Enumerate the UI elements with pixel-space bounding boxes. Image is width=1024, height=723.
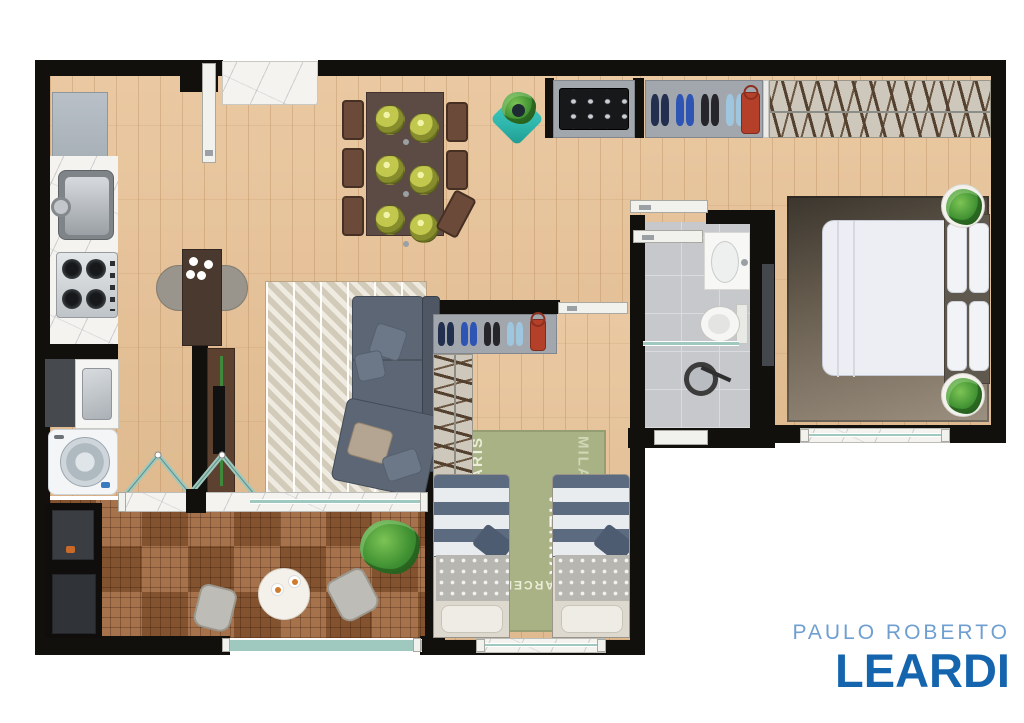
balcony-railing-glass — [228, 639, 422, 652]
bed-pillow — [441, 605, 503, 633]
bathroom-sink — [711, 241, 739, 283]
cutlery — [403, 191, 409, 197]
bed-pillow — [561, 605, 623, 633]
bed-headboard — [944, 214, 990, 384]
bed-pillow — [947, 223, 967, 293]
single-bed-right — [552, 474, 630, 638]
shoe — [726, 94, 734, 126]
door-frame — [118, 492, 126, 512]
door-frame — [420, 492, 428, 512]
window-frame — [597, 639, 606, 652]
shoe-pair — [651, 94, 669, 126]
toilet-bowl-inner — [708, 314, 730, 334]
closet-hanger-rail — [769, 80, 991, 138]
entry-door-handle — [205, 150, 213, 156]
cutlery — [403, 139, 409, 145]
entry-door-leaf — [202, 63, 216, 163]
dining-chair — [342, 148, 364, 188]
door-handle — [567, 306, 577, 311]
shoe — [711, 94, 719, 126]
plate — [409, 213, 439, 243]
plant-pot — [941, 184, 985, 228]
shoe — [676, 94, 684, 126]
dining-chair — [446, 102, 468, 142]
dining-chair — [342, 196, 364, 236]
tv-screen — [213, 386, 225, 454]
grill-ember — [66, 546, 75, 553]
service-shaft — [762, 264, 774, 366]
dining-chair — [342, 100, 364, 140]
kitchen-faucet — [51, 197, 71, 217]
window-frame — [800, 429, 809, 442]
dining-chair — [446, 150, 468, 190]
wall-balcony-bottom-left — [35, 636, 230, 655]
bedroom2-bag — [530, 319, 546, 351]
wall-balcony-corner-post — [420, 636, 445, 655]
entry-threshold — [222, 61, 318, 105]
brand-name-top: PAULO ROBERTO — [760, 622, 1010, 643]
potted-plant — [946, 189, 982, 225]
bathroom-sliding-door-inner — [633, 230, 703, 243]
floor-plan: PARISVIENNABARCELONAMILANNEW·YORKSYDNEYB… — [0, 0, 1024, 723]
brand-name-bottom: LEARDI — [760, 647, 1010, 694]
dotted-blanket — [555, 555, 629, 601]
bathroom-sliding-door — [630, 200, 708, 213]
sofa-pillow — [353, 349, 386, 382]
shoe-pair — [438, 322, 454, 346]
duvet-fold — [837, 221, 839, 377]
shoe — [461, 322, 468, 346]
island-plate — [204, 260, 213, 269]
bathroom-vanity — [704, 232, 750, 290]
shoe-pair — [484, 322, 500, 346]
railing-post — [222, 638, 230, 652]
shoe — [507, 322, 514, 346]
balcony-door-mullion — [186, 489, 206, 513]
single-bed-left — [433, 474, 510, 638]
closet-shoes — [651, 92, 737, 128]
bedroom2-hanger-rail — [433, 354, 473, 490]
shoe — [686, 94, 694, 126]
shoe — [470, 322, 477, 346]
planter-accessory — [512, 104, 525, 117]
wall-kitchen-stub — [45, 343, 118, 359]
shoe — [651, 94, 659, 126]
burner — [86, 259, 106, 279]
shoe-pair — [461, 322, 477, 346]
washer-drum — [60, 437, 110, 487]
plate — [409, 165, 439, 195]
dotted-blanket — [436, 555, 509, 601]
door-handle — [642, 235, 654, 240]
dining-table — [366, 92, 444, 236]
balcony-plant — [360, 520, 420, 574]
bedroom2-sliding-door — [558, 302, 628, 314]
wall-top-right — [318, 60, 1006, 76]
cutlery — [403, 241, 409, 247]
balcony-deck — [50, 500, 425, 638]
burner — [62, 259, 82, 279]
balcony-fruit — [292, 579, 298, 585]
laundry-cabinet — [45, 359, 75, 427]
plate — [375, 105, 405, 135]
bed-double-duvet — [822, 220, 950, 376]
oven-cooktop — [559, 88, 629, 130]
laundry-sink — [75, 359, 119, 429]
shoe — [493, 322, 500, 346]
plant-pot — [941, 373, 985, 417]
shower-door-threshold — [654, 430, 708, 445]
bed-pillow — [969, 223, 989, 293]
plate — [375, 205, 405, 235]
bathroom-faucet — [741, 259, 748, 266]
bedroom2-shoes — [438, 321, 520, 347]
washer-control — [54, 435, 64, 439]
shoe — [484, 322, 491, 346]
shoe — [438, 322, 445, 346]
bedroom1-window-glass — [808, 433, 942, 437]
brand-logo: PAULO ROBERTO LEARDI — [760, 622, 1010, 694]
washer-logo — [101, 482, 110, 488]
balcony-fruit — [275, 587, 281, 593]
closet-bag — [741, 92, 760, 134]
duvet-fold — [853, 221, 855, 377]
railing-post — [413, 638, 421, 652]
bedroom2-window-glass — [484, 643, 598, 647]
burner — [62, 289, 82, 309]
shoe-pair — [701, 94, 719, 126]
shoe-pair — [507, 322, 523, 346]
laundry-sink-basin — [82, 368, 112, 420]
bed-pillow — [947, 301, 967, 371]
shoe — [661, 94, 669, 126]
grill-cabinet — [52, 574, 96, 634]
window-frame — [476, 639, 485, 652]
plate — [409, 113, 439, 143]
wall-right — [991, 60, 1006, 430]
bed-pillow — [969, 301, 989, 371]
potted-plant — [946, 378, 982, 414]
plate — [375, 155, 405, 185]
shoe — [447, 322, 454, 346]
shoe-pair — [676, 94, 694, 126]
door-handle — [639, 205, 651, 210]
shoe — [701, 94, 709, 126]
kitchen-sink — [58, 170, 114, 240]
cooktop — [56, 252, 118, 318]
shower-glass-partition — [643, 341, 739, 346]
washing-machine — [48, 429, 118, 495]
balcony-table — [258, 568, 310, 620]
island-plate — [197, 271, 206, 280]
shoe — [516, 322, 523, 346]
kitchen-sink-basin — [65, 177, 109, 235]
island-plate — [186, 270, 195, 279]
fridge — [52, 92, 108, 158]
cooktop-knobs — [110, 261, 115, 311]
balcony-sliding-glass — [250, 499, 422, 504]
burner — [86, 289, 106, 309]
kitchen-island — [182, 249, 222, 346]
window-frame — [941, 429, 950, 442]
island-plate — [189, 257, 198, 266]
toilet — [700, 302, 750, 346]
